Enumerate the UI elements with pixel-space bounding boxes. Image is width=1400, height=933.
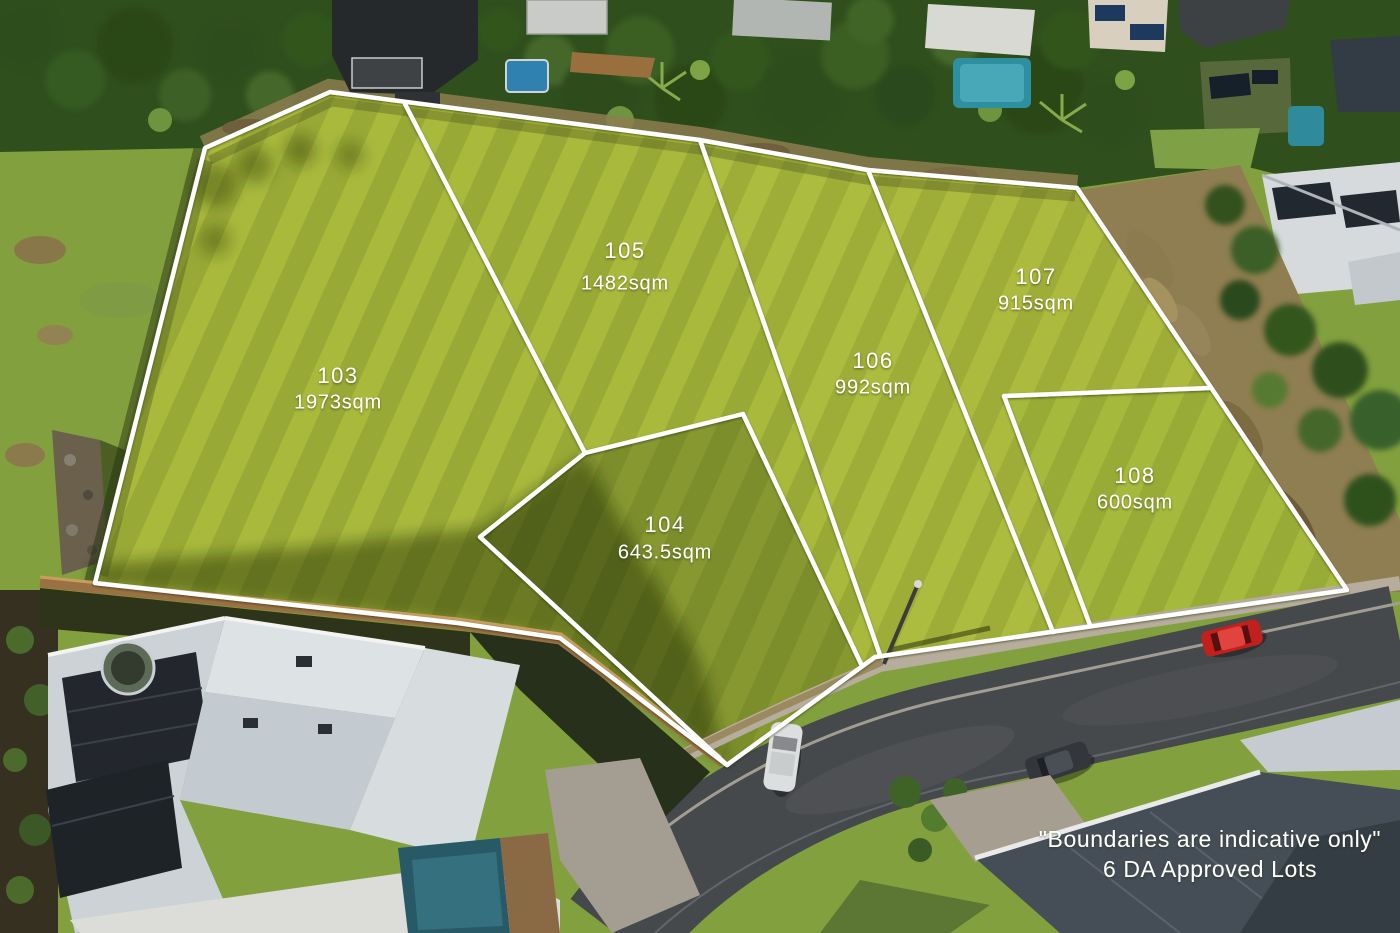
aerial-photo: 103 1973sqm 104 643.5sqm 105 1482sqm 106… [0, 0, 1400, 933]
charcoal-roof-house [1330, 36, 1400, 112]
scene-canvas: 103 1973sqm 104 643.5sqm 105 1482sqm 106… [0, 0, 1400, 933]
lot-105-number: 105 [604, 238, 645, 263]
carport-roof [527, 0, 607, 34]
lot-107-number: 107 [1015, 264, 1056, 289]
lot-106-area: 992sqm [835, 376, 911, 398]
swimming-pool-top-left [506, 60, 548, 92]
lot-103-area: 1973sqm [294, 391, 382, 413]
lot-104-area: 643.5sqm [618, 541, 712, 563]
gray-roof-house [732, 0, 832, 41]
lot-103-number: 103 [317, 363, 358, 388]
disclaimer-line1: "Boundaries are indicative only" [1039, 826, 1381, 852]
lot-105-area: 1482sqm [581, 272, 669, 294]
lot-108-number: 108 [1114, 463, 1155, 488]
lot-106-number: 106 [852, 348, 893, 373]
lot-108-area: 600sqm [1097, 491, 1173, 513]
street-light-head [914, 580, 922, 588]
lot-107-area: 915sqm [998, 292, 1074, 314]
swimming-pool-top-right [1288, 106, 1324, 146]
white-structure [925, 4, 1035, 56]
disclaimer-line2: 6 DA Approved Lots [1103, 856, 1317, 882]
lot-104-number: 104 [644, 512, 685, 537]
